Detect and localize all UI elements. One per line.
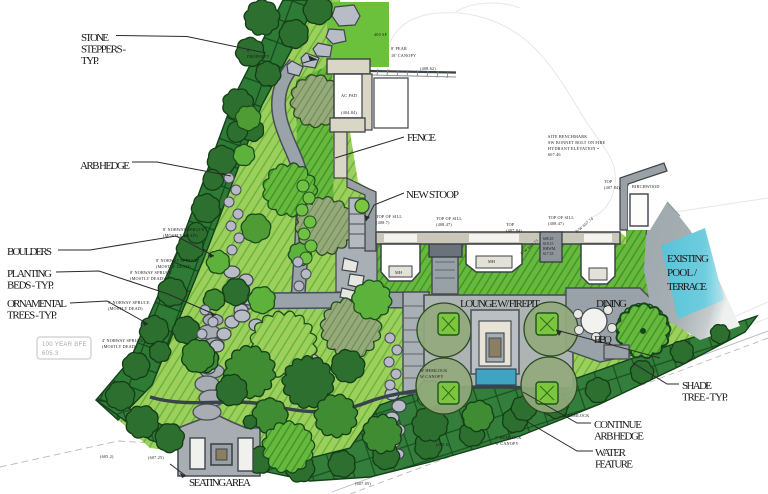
svg-text:W CANOPY: W CANOPY bbox=[495, 441, 519, 446]
svg-text:BHWM: BHWM bbox=[543, 247, 556, 251]
svg-text:605.3: 605.3 bbox=[42, 351, 59, 357]
svg-text:TOP: TOP bbox=[604, 179, 613, 184]
svg-text:DINING: DINING bbox=[596, 298, 627, 310]
svg-text:(408.47): (408.47) bbox=[548, 221, 564, 226]
svg-text:W CANOPY: W CANOPY bbox=[420, 374, 444, 379]
svg-text:(408.62): (408.62) bbox=[420, 66, 436, 71]
svg-text:TERRACE: TERRACE bbox=[667, 281, 707, 293]
svg-text:(407.84): (407.84) bbox=[604, 185, 620, 190]
svg-text:(407.84): (407.84) bbox=[506, 228, 522, 233]
svg-text:FEATURE: FEATURE bbox=[595, 459, 633, 471]
svg-text:(MOSTLY DEAD): (MOSTLY DEAD) bbox=[108, 306, 143, 311]
svg-text:607.46: 607.46 bbox=[548, 152, 561, 157]
svg-text:7' HEMLOCK: 7' HEMLOCK bbox=[495, 435, 522, 440]
svg-text:TOP OF SILL: TOP OF SILL bbox=[376, 214, 402, 219]
svg-text:8' NORWAY SPRUCE: 8' NORWAY SPRUCE bbox=[156, 258, 198, 263]
svg-text:CONTINUE: CONTINUE bbox=[594, 419, 642, 431]
svg-text:8' PEAR: 8' PEAR bbox=[391, 46, 407, 51]
svg-text:(605.2): (605.2) bbox=[100, 454, 114, 459]
svg-text:BOULDERS: BOULDERS bbox=[7, 246, 52, 258]
svg-text:(607.25): (607.25) bbox=[148, 455, 164, 460]
svg-text:8' NORWAY SPRUCE: 8' NORWAY SPRUCE bbox=[163, 227, 205, 232]
svg-text:TOP OF SILL: TOP OF SILL bbox=[436, 216, 462, 221]
svg-text:TOP: TOP bbox=[506, 222, 515, 227]
svg-text:FENCE: FENCE bbox=[407, 132, 436, 144]
svg-text:(607.05): (607.05) bbox=[355, 481, 371, 486]
svg-text:SEATING AREA: SEATING AREA bbox=[189, 477, 251, 489]
svg-text:TOP OF SILL: TOP OF SILL bbox=[548, 215, 574, 220]
svg-text:MH: MH bbox=[488, 259, 495, 264]
svg-text:(MOSTLY DEAD): (MOSTLY DEAD) bbox=[163, 233, 198, 238]
svg-text:BBQ: BBQ bbox=[594, 334, 612, 346]
svg-text:ORNAMENTAL: ORNAMENTAL bbox=[7, 298, 67, 310]
svg-text:617.18: 617.18 bbox=[543, 252, 554, 256]
svg-text:608.25: 608.25 bbox=[543, 237, 554, 241]
svg-text:9' NORWAY SPRUCE: 9' NORWAY SPRUCE bbox=[108, 300, 150, 305]
svg-text:SITE BENCHMARK: SITE BENCHMARK bbox=[548, 134, 587, 139]
svg-text:(408.7): (408.7) bbox=[376, 220, 390, 225]
svg-text:TYP.: TYP. bbox=[81, 55, 99, 67]
svg-text:STEPPERS -: STEPPERS - bbox=[81, 44, 126, 56]
svg-text:SHADE: SHADE bbox=[682, 380, 712, 392]
svg-text:PLANTING: PLANTING bbox=[7, 268, 52, 280]
svg-text:(605.8): (605.8) bbox=[436, 442, 450, 447]
svg-text:STONE: STONE bbox=[81, 32, 109, 44]
svg-text:SW BONNET BOLT ON FIRE: SW BONNET BOLT ON FIRE bbox=[548, 140, 606, 145]
svg-text:8' NORWAY SPRUCE: 8' NORWAY SPRUCE bbox=[130, 270, 172, 275]
svg-text:BEDS - TYP.: BEDS - TYP. bbox=[7, 280, 54, 292]
svg-text:MH: MH bbox=[395, 270, 402, 275]
svg-text:LOUNGE W/ FIREPIT: LOUNGE W/ FIREPIT bbox=[460, 298, 540, 310]
svg-text:TREE - TYP.: TREE - TYP. bbox=[682, 392, 728, 404]
svg-text:TREES - TYP.: TREES - TYP. bbox=[7, 310, 57, 322]
svg-text:8': 8' bbox=[247, 48, 250, 53]
svg-text:(MOSTLY DEAD): (MOSTLY DEAD) bbox=[102, 344, 137, 349]
svg-text:POOL /: POOL / bbox=[667, 267, 698, 279]
svg-text:W HEMLOCK: W HEMLOCK bbox=[420, 368, 447, 373]
svg-text:100 YEAR BFE: 100 YEAR BFE bbox=[42, 342, 87, 348]
svg-text:W HEMLOCK: W HEMLOCK bbox=[562, 413, 589, 418]
svg-text:(408.47): (408.47) bbox=[436, 222, 452, 227]
svg-text:(404.84): (404.84) bbox=[341, 110, 357, 115]
svg-text:EXISTING: EXISTING bbox=[667, 253, 709, 265]
svg-text:4' NORWAY SPRUCE: 4' NORWAY SPRUCE bbox=[102, 338, 144, 343]
svg-text:HYDRANT ELEVATION =: HYDRANT ELEVATION = bbox=[548, 146, 600, 151]
svg-text:(MOSTLY DEAD): (MOSTLY DEAD) bbox=[156, 264, 191, 269]
svg-text:ARB HEDGE: ARB HEDGE bbox=[80, 160, 130, 172]
svg-text:BIRCHWOOD: BIRCHWOOD bbox=[632, 184, 660, 189]
svg-text:AC PAD: AC PAD bbox=[341, 93, 357, 98]
svg-text:(MOSTLY DEAD): (MOSTLY DEAD) bbox=[130, 276, 165, 281]
svg-text:400 SF: 400 SF bbox=[374, 32, 388, 37]
svg-text:ARB HEDGE: ARB HEDGE bbox=[594, 431, 644, 443]
svg-text:618.15: 618.15 bbox=[543, 242, 554, 246]
svg-text:PROPERTY: PROPERTY bbox=[247, 54, 270, 59]
svg-text:WATER: WATER bbox=[595, 447, 627, 459]
svg-text:18' CANOPY: 18' CANOPY bbox=[391, 53, 416, 58]
svg-text:NEW STOOP: NEW STOOP bbox=[406, 189, 459, 201]
